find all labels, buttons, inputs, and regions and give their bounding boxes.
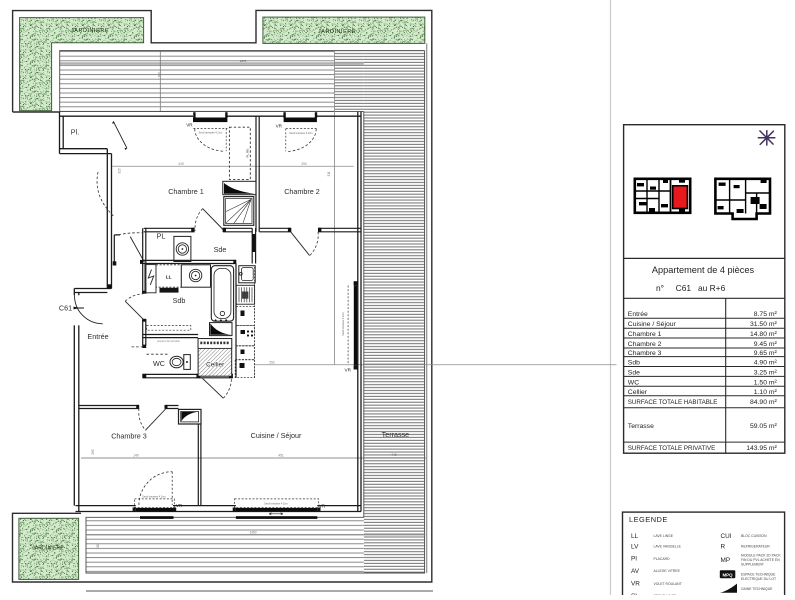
svg-text:180: 180 [96, 544, 100, 550]
svg-text:Cellier: Cellier [628, 389, 648, 396]
svg-text:252: 252 [269, 360, 275, 364]
svg-text:140: 140 [133, 453, 139, 457]
svg-text:160: 160 [158, 72, 162, 78]
svg-text:Chambre 1: Chambre 1 [628, 331, 662, 338]
svg-text:JARDINIERE: JARDINIERE [71, 28, 109, 34]
svg-text:VR: VR [276, 124, 283, 129]
svg-text:PI: PI [631, 556, 637, 563]
svg-text:3.25 m²: 3.25 m² [754, 369, 778, 376]
svg-text:LL: LL [166, 275, 172, 280]
svg-text:SUPPLEMENT: SUPPLEMENT [741, 563, 764, 567]
svg-text:Seuil terrasse 4 2cm: Seuil terrasse 4 2cm [264, 501, 288, 505]
svg-text:GAINE TECHNIQUE: GAINE TECHNIQUE [741, 587, 773, 591]
svg-text:Sde: Sde [628, 369, 640, 376]
svg-text:143.95 m²: 143.95 m² [746, 445, 777, 452]
svg-text:451: 451 [278, 453, 284, 457]
svg-text:59.05 m²: 59.05 m² [750, 423, 778, 430]
svg-text:PL: PL [157, 231, 166, 240]
svg-text:Sde: Sde [214, 245, 227, 254]
svg-text:Pl.: Pl. [71, 127, 79, 136]
svg-text:Terrasse: Terrasse [382, 430, 410, 439]
svg-text:Terrasse: Terrasse [628, 423, 654, 430]
svg-text:VR: VR [186, 123, 193, 128]
svg-text:1.50 m²: 1.50 m² [754, 379, 778, 386]
svg-text:1.10 m²: 1.10 m² [754, 389, 778, 396]
svg-text:WC: WC [628, 379, 639, 386]
svg-text:Seuil terrasse 4 2cm: Seuil terrasse 4 2cm [341, 312, 345, 336]
svg-text:1075: 1075 [240, 59, 247, 63]
svg-text:ESPACE TECHNIQUE: ESPACE TECHNIQUE [741, 572, 776, 576]
svg-text:Appartement de 4 pièces: Appartement de 4 pièces [652, 265, 755, 275]
svg-text:PL.RG: PL.RG [245, 148, 249, 158]
svg-text:VOLET ROULANT: VOLET ROULANT [654, 582, 682, 586]
svg-text:Chambre 2: Chambre 2 [284, 187, 320, 196]
svg-text:4.90 m²: 4.90 m² [754, 360, 778, 367]
svg-text:9.65 m²: 9.65 m² [754, 350, 778, 357]
svg-text:Seuil terrasse 4 2cm: Seuil terrasse 4 2cm [199, 131, 223, 135]
svg-text:Sdb: Sdb [628, 360, 640, 367]
svg-text:BLOC CUISSON: BLOC CUISSON [741, 534, 767, 538]
svg-text:LL: LL [631, 533, 639, 540]
svg-text:R: R [721, 544, 726, 551]
svg-text:Sdb: Sdb [173, 296, 186, 305]
svg-text:Cellier: Cellier [206, 361, 225, 368]
svg-text:84.90 m²: 84.90 m² [750, 399, 778, 406]
svg-text:Seuil terrasse 4 2cm: Seuil terrasse 4 2cm [142, 495, 166, 499]
svg-text:419: 419 [178, 162, 184, 166]
svg-text:MODULE PACK 2D PACK: MODULE PACK 2D PACK [741, 554, 781, 558]
svg-text:AV: AV [631, 568, 640, 575]
svg-text:WC: WC [153, 359, 165, 368]
svg-text:294: 294 [301, 162, 307, 166]
svg-text:745: 745 [391, 453, 397, 457]
svg-text:Chambre 1: Chambre 1 [168, 187, 204, 196]
svg-text:REFRIGERATEUR: REFRIGERATEUR [741, 545, 770, 549]
svg-text:Cuisine / Séjour: Cuisine / Séjour [251, 431, 302, 440]
svg-text:MPQ: MPQ [722, 573, 733, 578]
svg-text:Chambre 3: Chambre 3 [628, 350, 662, 357]
svg-text:1460: 1460 [249, 531, 256, 535]
svg-text:8.75 m²: 8.75 m² [754, 311, 778, 318]
svg-text:n° C61 au R+6: n° C61 au R+6 [656, 283, 726, 293]
svg-text:31.50 m²: 31.50 m² [750, 321, 778, 328]
svg-text:Chambre 3: Chambre 3 [111, 432, 147, 441]
svg-text:14.80 m²: 14.80 m² [750, 331, 778, 338]
svg-text:LV: LV [631, 544, 639, 551]
svg-text:JARDINIERE: JARDINIERE [318, 29, 356, 35]
svg-text:ALLEGE VITREE: ALLEGE VITREE [654, 569, 681, 573]
svg-text:VR: VR [345, 368, 352, 373]
svg-text:Entrée: Entrée [628, 311, 648, 318]
svg-text:Cuisine / Séjour: Cuisine / Séjour [628, 321, 677, 328]
svg-text:C61: C61 [59, 304, 72, 313]
svg-text:MP: MP [721, 557, 731, 564]
svg-text:placard démontable: placard démontable [157, 339, 180, 343]
svg-text:Seuil terrasse 4 2cm: Seuil terrasse 4 2cm [289, 131, 313, 135]
svg-text:265: 265 [91, 449, 95, 455]
svg-text:PLACARD: PLACARD [654, 557, 671, 561]
svg-text:Entrée: Entrée [87, 332, 108, 341]
svg-text:Chambre 2: Chambre 2 [628, 341, 662, 348]
svg-text:SURFACE TOTALE PRIVATIVE: SURFACE TOTALE PRIVATIVE [628, 445, 715, 452]
svg-text:LEGENDE: LEGENDE [629, 515, 668, 524]
svg-text:LAVE LINGE: LAVE LINGE [654, 534, 674, 538]
svg-text:311: 311 [327, 171, 331, 176]
svg-text:CUI: CUI [721, 533, 732, 540]
svg-text:FIN DU PVL ACHETE EN: FIN DU PVL ACHETE EN [741, 558, 780, 562]
svg-text:SURFACE TOTALE HABITABLE: SURFACE TOTALE HABITABLE [628, 399, 718, 406]
svg-text:ELECTRIQUE DU LOT: ELECTRIQUE DU LOT [741, 577, 776, 581]
svg-text:LAVE VAISSELLE: LAVE VAISSELLE [654, 545, 682, 549]
svg-text:9.45 m²: 9.45 m² [754, 341, 778, 348]
svg-text:VR: VR [631, 581, 640, 588]
svg-text:VR: VR [176, 503, 183, 508]
svg-text:JARDINIERE: JARDINIERE [32, 546, 64, 552]
svg-text:315: 315 [118, 168, 122, 174]
